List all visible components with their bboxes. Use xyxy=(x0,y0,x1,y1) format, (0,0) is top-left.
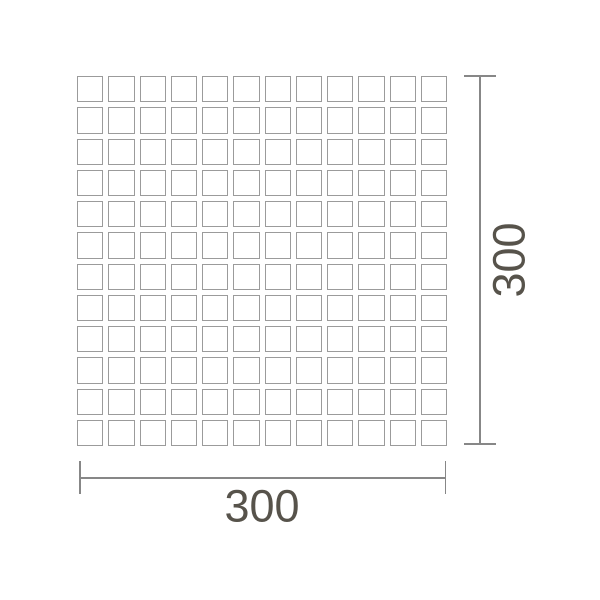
tile-cell xyxy=(265,139,291,165)
tile-cell xyxy=(390,107,416,133)
tile-cell xyxy=(421,170,447,196)
tile-cell xyxy=(390,295,416,321)
tile-cell xyxy=(421,295,447,321)
tile-cell xyxy=(358,232,384,258)
tile-cell xyxy=(296,232,322,258)
tile-cell xyxy=(108,232,134,258)
tile-cell xyxy=(390,201,416,227)
tile-cell xyxy=(421,139,447,165)
tile-cell xyxy=(233,326,259,352)
tile-cell xyxy=(202,420,228,446)
tile-cell xyxy=(77,326,103,352)
tile-cell xyxy=(233,264,259,290)
tile-cell xyxy=(265,295,291,321)
tile-cell xyxy=(233,201,259,227)
tile-cell xyxy=(265,264,291,290)
tile-cell xyxy=(327,201,353,227)
tile-cell xyxy=(77,170,103,196)
tile-cell xyxy=(233,139,259,165)
tile-cell xyxy=(233,295,259,321)
tile-cell xyxy=(421,201,447,227)
tile-cell xyxy=(140,201,166,227)
tile-cell xyxy=(421,76,447,102)
diagram-canvas: 300 300 xyxy=(0,0,600,600)
tile-cell xyxy=(265,420,291,446)
tile-cell xyxy=(233,232,259,258)
tile-cell xyxy=(265,326,291,352)
tile-cell xyxy=(202,139,228,165)
height-dimension-top-tick xyxy=(464,75,496,77)
tile-cell xyxy=(421,232,447,258)
tile-cell xyxy=(233,357,259,383)
tile-cell xyxy=(327,139,353,165)
tile-cell xyxy=(421,420,447,446)
tile-cell xyxy=(296,295,322,321)
tile-cell xyxy=(358,420,384,446)
tile-cell xyxy=(327,389,353,415)
tile-cell xyxy=(233,170,259,196)
tile-cell xyxy=(296,264,322,290)
tile-cell xyxy=(171,264,197,290)
tile-cell xyxy=(202,232,228,258)
tile-cell xyxy=(171,295,197,321)
tile-cell xyxy=(108,170,134,196)
tile-cell xyxy=(108,107,134,133)
tile-cell xyxy=(202,107,228,133)
tile-cell xyxy=(390,326,416,352)
tile-cell xyxy=(358,76,384,102)
tile-cell xyxy=(77,357,103,383)
tile-cell xyxy=(296,420,322,446)
tile-cell xyxy=(202,170,228,196)
tile-cell xyxy=(140,326,166,352)
tile-cell xyxy=(296,76,322,102)
tile-cell xyxy=(77,107,103,133)
tile-cell xyxy=(77,201,103,227)
tile-cell xyxy=(108,326,134,352)
tile-cell xyxy=(421,326,447,352)
tile-cell xyxy=(327,326,353,352)
tile-cell xyxy=(77,420,103,446)
tile-cell xyxy=(108,295,134,321)
tile-cell xyxy=(390,264,416,290)
tile-cell xyxy=(108,76,134,102)
tile-cell xyxy=(390,170,416,196)
tile-cell xyxy=(265,201,291,227)
tile-cell xyxy=(265,389,291,415)
tile-cell xyxy=(358,326,384,352)
tile-cell xyxy=(108,389,134,415)
tile-cell xyxy=(296,389,322,415)
tile-cell xyxy=(171,170,197,196)
tile-cell xyxy=(233,389,259,415)
tile-cell xyxy=(140,170,166,196)
tile-cell xyxy=(327,170,353,196)
tile-cell xyxy=(390,389,416,415)
tile-cell xyxy=(108,264,134,290)
tile-cell xyxy=(296,326,322,352)
height-dimension-label: 300 xyxy=(487,222,532,297)
tile-cell xyxy=(421,264,447,290)
tile-cell xyxy=(171,76,197,102)
width-dimension-label: 300 xyxy=(224,484,299,529)
tile-cell xyxy=(202,295,228,321)
tile-cell xyxy=(140,107,166,133)
height-dimension-bottom-tick xyxy=(464,443,496,445)
tile-cell xyxy=(140,139,166,165)
tile-cell xyxy=(358,357,384,383)
tile-grid xyxy=(77,76,447,446)
tile-cell xyxy=(265,232,291,258)
tile-cell xyxy=(421,357,447,383)
tile-cell xyxy=(202,201,228,227)
tile-cell xyxy=(296,107,322,133)
tile-cell xyxy=(140,295,166,321)
tile-cell xyxy=(171,201,197,227)
tile-cell xyxy=(358,201,384,227)
height-dimension-line xyxy=(479,75,481,444)
tile-cell xyxy=(171,420,197,446)
tile-cell xyxy=(171,357,197,383)
tile-cell xyxy=(140,389,166,415)
tile-cell xyxy=(358,295,384,321)
tile-cell xyxy=(265,170,291,196)
width-dimension-line xyxy=(79,477,446,479)
tile-cell xyxy=(233,107,259,133)
tile-cell xyxy=(296,139,322,165)
tile-cell xyxy=(327,76,353,102)
tile-cell xyxy=(77,295,103,321)
tile-cell xyxy=(265,76,291,102)
tile-cell xyxy=(202,389,228,415)
tile-cell xyxy=(108,420,134,446)
tile-cell xyxy=(171,389,197,415)
tile-cell xyxy=(140,76,166,102)
tile-cell xyxy=(108,139,134,165)
width-dimension-left-tick xyxy=(79,461,81,494)
tile-cell xyxy=(358,170,384,196)
tile-cell xyxy=(233,420,259,446)
tile-cell xyxy=(296,357,322,383)
tile-cell xyxy=(77,389,103,415)
tile-cell xyxy=(140,264,166,290)
tile-cell xyxy=(140,357,166,383)
tile-cell xyxy=(327,357,353,383)
tile-cell xyxy=(140,420,166,446)
tile-cell xyxy=(390,76,416,102)
tile-cell xyxy=(171,107,197,133)
tile-cell xyxy=(327,420,353,446)
tile-cell xyxy=(108,357,134,383)
tile-cell xyxy=(327,264,353,290)
tile-cell xyxy=(421,389,447,415)
tile-cell xyxy=(390,420,416,446)
tile-cell xyxy=(390,357,416,383)
tile-cell xyxy=(390,232,416,258)
tile-cell xyxy=(77,264,103,290)
tile-cell xyxy=(108,201,134,227)
tile-cell xyxy=(327,107,353,133)
tile-cell xyxy=(140,232,166,258)
tile-cell xyxy=(171,232,197,258)
tile-cell xyxy=(233,76,259,102)
tile-cell xyxy=(296,201,322,227)
tile-cell xyxy=(265,107,291,133)
tile-cell xyxy=(327,295,353,321)
tile-cell xyxy=(171,326,197,352)
tile-cell xyxy=(77,232,103,258)
tile-cell xyxy=(327,232,353,258)
tile-cell xyxy=(421,107,447,133)
tile-cell xyxy=(358,389,384,415)
tile-cell xyxy=(171,139,197,165)
tile-cell xyxy=(202,357,228,383)
tile-cell xyxy=(265,357,291,383)
tile-cell xyxy=(202,264,228,290)
tile-cell xyxy=(358,107,384,133)
tile-cell xyxy=(390,139,416,165)
tile-cell xyxy=(358,264,384,290)
tile-cell xyxy=(358,139,384,165)
tile-cell xyxy=(202,326,228,352)
tile-cell xyxy=(296,170,322,196)
tile-cell xyxy=(77,139,103,165)
width-dimension-right-tick xyxy=(445,461,447,494)
tile-cell xyxy=(77,76,103,102)
tile-cell xyxy=(202,76,228,102)
